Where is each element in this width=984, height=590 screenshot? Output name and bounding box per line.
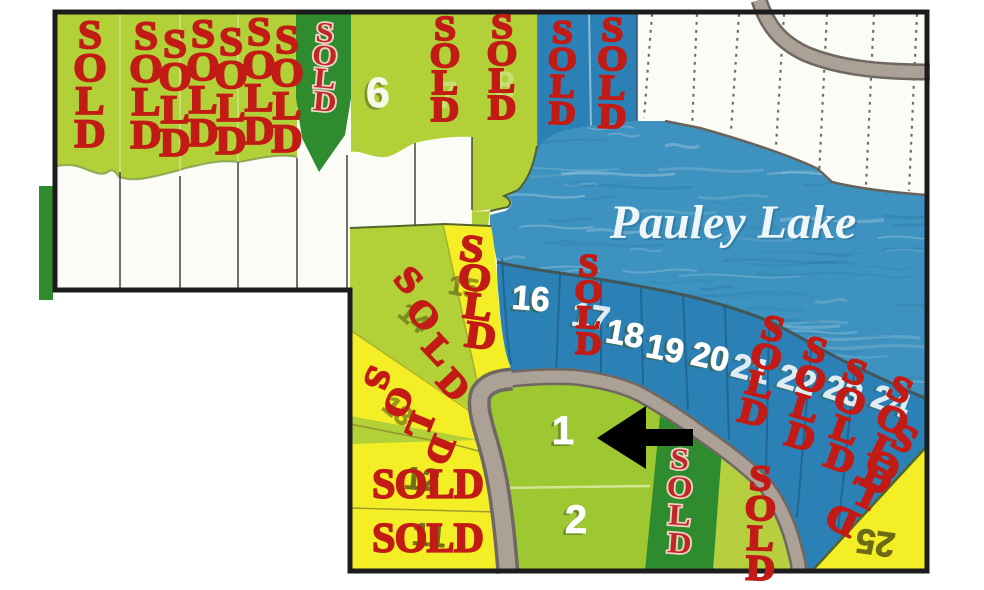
svg-text:D: D bbox=[666, 526, 693, 561]
svg-text:D: D bbox=[745, 548, 775, 589]
svg-text:D: D bbox=[312, 85, 338, 119]
svg-text:D: D bbox=[271, 117, 302, 161]
svg-text:D: D bbox=[431, 91, 459, 130]
svg-text:25: 25 bbox=[853, 520, 897, 564]
svg-text:D: D bbox=[548, 94, 576, 132]
svg-text:1: 1 bbox=[552, 409, 574, 453]
svg-text:SOLD: SOLD bbox=[372, 462, 484, 508]
svg-text:D: D bbox=[598, 97, 628, 137]
svg-text:18: 18 bbox=[603, 312, 647, 356]
svg-text:D: D bbox=[159, 121, 190, 165]
svg-text:D: D bbox=[74, 112, 105, 156]
svg-text:D: D bbox=[463, 312, 499, 358]
svg-text:D: D bbox=[130, 113, 161, 157]
svg-text:D: D bbox=[187, 111, 218, 155]
svg-text:20: 20 bbox=[688, 335, 733, 380]
svg-text:SOLD: SOLD bbox=[372, 516, 484, 562]
svg-text:D: D bbox=[215, 119, 246, 163]
svg-text:6: 6 bbox=[366, 69, 390, 117]
svg-text:D: D bbox=[243, 109, 274, 153]
svg-text:D: D bbox=[575, 326, 603, 362]
svg-text:19: 19 bbox=[643, 327, 687, 372]
svg-text:D: D bbox=[488, 89, 516, 128]
svg-text:Pauley Lake: Pauley Lake bbox=[609, 196, 857, 249]
svg-text:2: 2 bbox=[565, 498, 587, 542]
svg-text:16: 16 bbox=[511, 279, 551, 320]
